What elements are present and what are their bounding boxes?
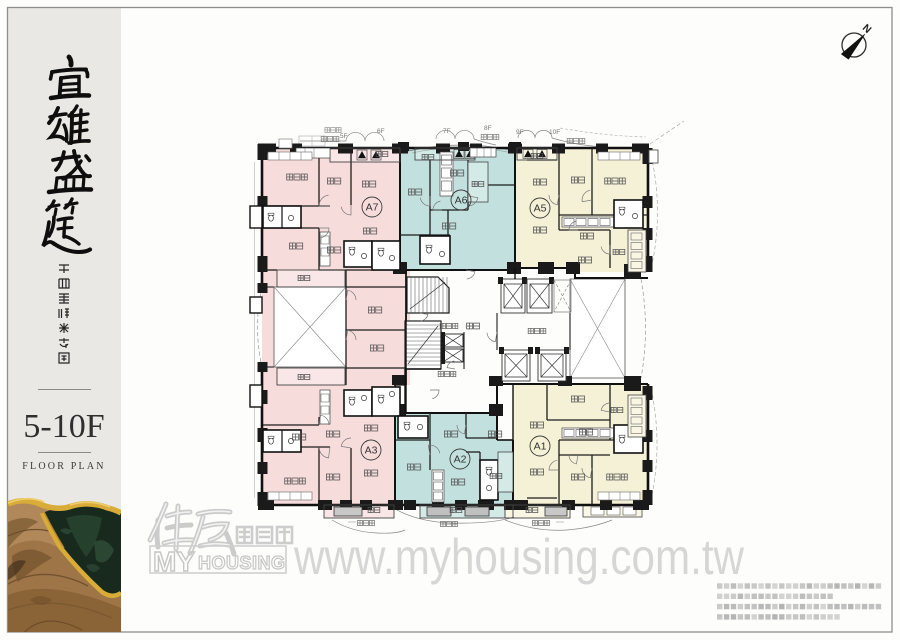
svg-text:7F: 7F xyxy=(443,128,451,135)
svg-text:A5: A5 xyxy=(534,203,547,215)
svg-text:FLOOR PLAN: FLOOR PLAN xyxy=(22,461,105,472)
svg-text:6F: 6F xyxy=(377,128,385,135)
svg-text:5-10F: 5-10F xyxy=(23,408,104,445)
svg-text:8F: 8F xyxy=(484,125,492,132)
svg-text:A3: A3 xyxy=(365,445,378,457)
svg-text:A1: A1 xyxy=(534,441,547,453)
svg-text:www.myhousing.com.tw: www.myhousing.com.tw xyxy=(293,529,745,585)
svg-text:HOUSING: HOUSING xyxy=(198,553,286,573)
svg-text:9F: 9F xyxy=(516,129,524,136)
svg-text:A7: A7 xyxy=(366,202,379,214)
svg-text:A6: A6 xyxy=(455,195,468,207)
svg-text:10F: 10F xyxy=(549,129,560,136)
svg-text:A2: A2 xyxy=(454,454,467,466)
svg-text:5F: 5F xyxy=(340,133,348,140)
svg-text:MY: MY xyxy=(153,546,195,577)
